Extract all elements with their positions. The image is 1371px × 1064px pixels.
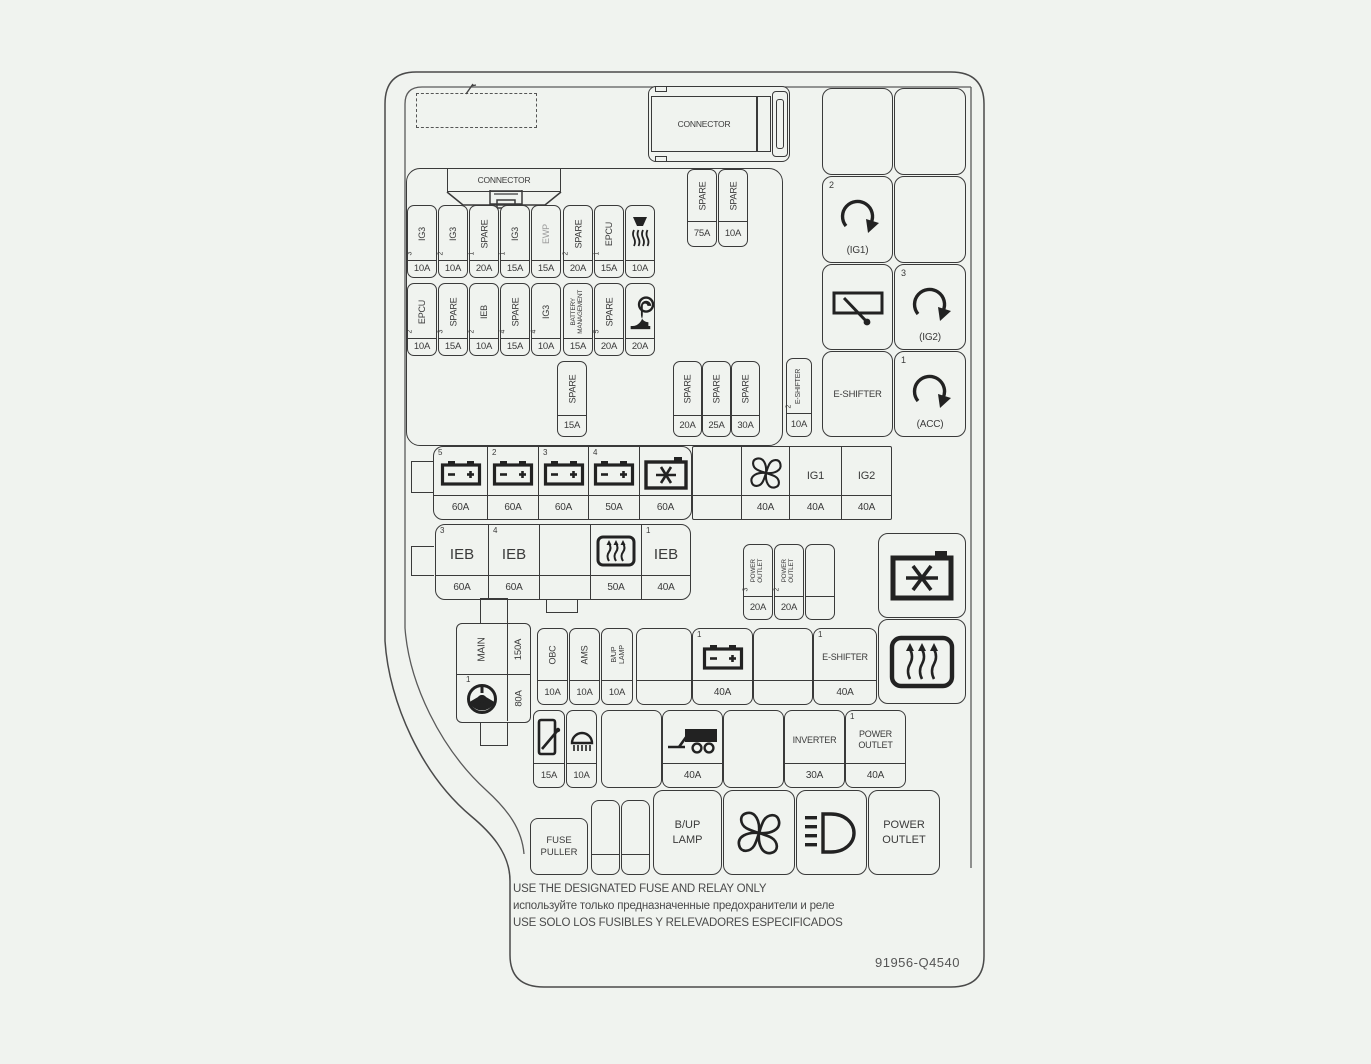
- eps-cell: 1: [457, 675, 508, 721]
- fuse-lamp: 10A: [566, 710, 597, 788]
- fuse-puller: FUSE PULLER: [530, 818, 588, 875]
- battery-icon: [440, 458, 482, 488]
- relay-wiper: [822, 264, 893, 350]
- fuse-battery-management: BATTERYMANAGEMENT 15A: [563, 283, 593, 356]
- fuse-battery-2: 2 60A: [487, 447, 538, 519]
- fuse-power-outlet-3: 3 POWEROUTLET 20A: [743, 544, 773, 620]
- fan-ig-strip: 40A IG1 40A IG2 40A: [692, 446, 892, 520]
- relay-cooling-fan: [723, 790, 795, 875]
- side-tab: [411, 461, 434, 493]
- rear-defrost-icon: [596, 535, 636, 567]
- top-connector-label: CONNECTOR: [652, 119, 756, 129]
- top-connector-body: CONNECTOR: [651, 96, 757, 152]
- horn-icon: [626, 291, 654, 333]
- main-fuse-assembly: MAIN 150A 1 80A: [456, 623, 531, 723]
- fuse-ewp: EWP 15A: [531, 205, 561, 278]
- ac-compressor-icon: [643, 456, 689, 490]
- relay-rear-defrost: [878, 619, 966, 704]
- relay-power-outlet: POWER OUTLET: [868, 790, 940, 875]
- side-tab: [411, 546, 434, 576]
- fuse-inverter: INVERTER 30A: [784, 710, 845, 788]
- fuse-ig3-3: 3 IG3 10A: [407, 205, 437, 278]
- wiper-icon: [536, 718, 562, 758]
- rear-defrost-icon: [889, 634, 955, 690]
- fuse-ac-compressor: 60A: [639, 447, 691, 519]
- fan-icon: [730, 804, 788, 862]
- battery-fuse-strip: 5 60A 2 60A 3: [433, 446, 692, 520]
- fuse-slot-empty: [636, 628, 692, 705]
- main-amp-cell: 150A: [508, 624, 530, 675]
- top-tab: [480, 598, 508, 624]
- top-connector-rib: [757, 96, 771, 152]
- top-connector-tab-top: [655, 86, 667, 92]
- fuse-box-diagram: CONNECTOR CONNECTOR SPARE 75A SPARE 10A …: [0, 0, 1371, 1064]
- fuse-wiper: 15A: [533, 710, 565, 788]
- label-area-dashed-box: [416, 93, 537, 128]
- fuse-spare-10: SPARE 10A: [718, 169, 748, 247]
- footer-warning-ru: используйте только предназначенные предо…: [513, 900, 834, 912]
- fuse-ig3-1: 1 IG3 15A: [500, 205, 530, 278]
- lamp-icon: [568, 721, 596, 755]
- fuse-ieb-2: 2 IEB 10A: [469, 283, 499, 356]
- inner-connector-label: CONNECTOR: [448, 175, 560, 185]
- main-amp2-cell: 80A: [508, 675, 530, 721]
- fuse-spare-1: 1 SPARE 20A: [469, 205, 499, 278]
- fuse-battery-3: 3 60A: [538, 447, 588, 519]
- fuse-horn: 20A: [625, 283, 655, 356]
- main-label-cell: MAIN: [457, 624, 508, 675]
- fuse-slot-empty: [693, 447, 741, 519]
- inner-connector-body: CONNECTOR: [447, 168, 561, 192]
- fuse-ams: AMS 10A: [569, 628, 600, 705]
- fuse-washer-nozzle: 10A: [625, 205, 655, 278]
- footer-warning-en: USE THE DESIGNATED FUSE AND RELAY ONLY: [513, 883, 766, 895]
- steering-eps-icon: [464, 681, 500, 717]
- fuse-slot-empty: [591, 800, 620, 875]
- fan-icon: [745, 452, 787, 494]
- fuse-spare-2: 2 SPARE 20A: [563, 205, 593, 278]
- fuse-eshifter-1: 1 E-SHIFTER 40A: [813, 628, 877, 705]
- relay-acc: 1 (ACC): [894, 351, 966, 437]
- fuse-battery-4: 4 50A: [588, 447, 639, 519]
- bottom-tab: [480, 722, 508, 746]
- fuse-slot-empty: [753, 628, 813, 705]
- fuse-obc: OBC 10A: [537, 628, 568, 705]
- fuse-power-outlet-2: 2 POWEROUTLET 20A: [774, 544, 804, 620]
- part-number: 91956-Q4540: [790, 955, 960, 970]
- battery-icon: [492, 458, 534, 488]
- fuse-ig2: IG2 40A: [841, 447, 891, 519]
- fuse-epcu-2: 2 EPCU 10A: [407, 283, 437, 356]
- fuse-spare-3: 3 SPARE 15A: [438, 283, 468, 356]
- ieb-fuse-strip: 3 IEB 60A 4 IEB 60A: [435, 524, 691, 600]
- top-connector-tab-bottom: [655, 156, 667, 162]
- relay-ac-compressor: [878, 533, 966, 618]
- fuse-spare-25a: SPARE 25A: [702, 361, 731, 437]
- fuse-slot-empty: [805, 544, 835, 620]
- fuse-spare-4: 4 SPARE 15A: [500, 283, 530, 356]
- fuse-spare-20a: SPARE 20A: [673, 361, 702, 437]
- rotation-arrow-icon: [907, 281, 953, 323]
- fuse-ieb-4: 4 IEB 60A: [488, 525, 539, 599]
- bottom-tab: [546, 599, 578, 613]
- slot-divider: [591, 854, 620, 855]
- washer-nozzle-icon: [626, 215, 654, 253]
- top-connector-latch-bar: [776, 99, 784, 149]
- slot-divider: [621, 854, 650, 855]
- fuse-ig1: IG1 40A: [789, 447, 841, 519]
- fuse-cooling-fan: 40A: [741, 447, 789, 519]
- ac-compressor-icon: [889, 549, 955, 603]
- fuse-spare-30a: SPARE 30A: [731, 361, 760, 437]
- rotation-arrow-icon: [835, 193, 881, 235]
- fuse-spare-15a: SPARE 15A: [557, 361, 587, 437]
- relay-slot-empty-3: [894, 176, 966, 263]
- relay-eshifter: E-SHIFTER: [822, 351, 893, 437]
- fuse-spare-75: SPARE 75A: [687, 169, 717, 247]
- fuse-spare-5: 5 SPARE 20A: [594, 283, 624, 356]
- footer-warning-es: USE SOLO LOS FUSIBLES Y RELEVADORES ESPE…: [513, 917, 843, 929]
- fuse-slot-empty: [723, 710, 784, 788]
- relay-slot-empty-1: [822, 88, 893, 175]
- relay-bup-lamp: B/UP LAMP: [653, 790, 722, 875]
- rotation-arrow-icon: [907, 368, 953, 410]
- wiper-icon: [831, 285, 885, 329]
- fuse-ig3-4: 4 IG3 10A: [531, 283, 561, 356]
- fuse-ig3-2: 2 IG3 10A: [438, 205, 468, 278]
- fuse-slot-empty: [539, 525, 590, 599]
- relay-ig2: 3 (IG2): [894, 264, 966, 350]
- fuse-battery-1: 1 40A: [692, 628, 753, 705]
- relay-ig1: 2 (IG1): [822, 176, 893, 263]
- fuse-slot-empty: [621, 800, 650, 875]
- battery-icon: [593, 458, 635, 488]
- fuse-eshifter-2: 2 E-SHIFTER 10A: [786, 358, 812, 437]
- fuse-ieb-1: 1 IEB 40A: [641, 525, 690, 599]
- headlight-icon: [803, 810, 861, 856]
- tick-mark: [463, 82, 479, 96]
- fuse-slot-empty: [601, 710, 662, 788]
- battery-icon: [543, 458, 585, 488]
- fuse-power-outlet-1: 1 POWER OUTLET 40A: [845, 710, 906, 788]
- trailer-icon: [667, 723, 719, 757]
- fuse-rear-defrost: 50A: [590, 525, 641, 599]
- battery-icon: [701, 642, 745, 672]
- fuse-battery-5: 5 60A: [434, 447, 487, 519]
- fuse-trailer: 40A: [662, 710, 723, 788]
- fuse-ieb-3: 3 IEB 60A: [436, 525, 488, 599]
- relay-headlight: [796, 790, 867, 875]
- fuse-bup-lamp: B/UPLAMP 10A: [601, 628, 633, 705]
- fuse-epcu-1: 1 EPCU 15A: [594, 205, 624, 278]
- relay-slot-empty-2: [894, 88, 966, 175]
